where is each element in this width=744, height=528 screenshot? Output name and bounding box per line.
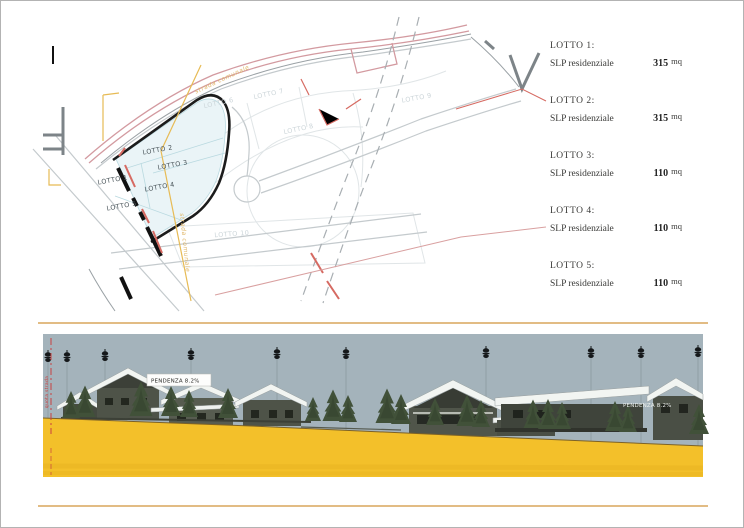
legend-slp-unit: mq	[671, 111, 682, 121]
legend-slp-value: 110	[654, 168, 668, 179]
legend-slp-unit: mq	[671, 276, 682, 286]
slope-annotation-left: PENDENZA 8.2%	[147, 374, 211, 386]
legend-slp-label: SLP residenziale	[550, 279, 614, 289]
legend-slp-label: SLP residenziale	[550, 114, 614, 124]
lot-label-9: LOTTO 9	[401, 91, 432, 104]
road-lines	[33, 39, 521, 311]
legend-lot-title: LOTTO 4:	[550, 206, 700, 216]
lot-label-1: LOTTO 1	[97, 173, 128, 186]
legend-entry-lotto-2: LOTTO 2: SLP residenziale 315 mq	[550, 96, 700, 151]
slope-label-right: PENDENZA 8.2%	[623, 403, 672, 409]
legend-entry-lotto-1: LOTTO 1: SLP residenziale 315 mq	[550, 41, 700, 96]
elevation-drawing: quota strada PENDENZA 8.2% PENDENZA 8.2%	[1, 316, 744, 521]
legend-slp-label: SLP residenziale	[550, 224, 614, 234]
legend-entry-lotto-3: LOTTO 3: SLP residenziale 110 mq	[550, 151, 700, 206]
datum-label: quota strada	[44, 376, 50, 408]
legend-lot-title: LOTTO 2:	[550, 96, 700, 106]
legend-slp-value: 110	[654, 278, 668, 289]
lot-legend: LOTTO 1: SLP residenziale 315 mq LOTTO 2…	[550, 41, 700, 316]
legend-entry-lotto-5: LOTTO 5: SLP residenziale 110 mq	[550, 261, 700, 316]
slope-label-left: PENDENZA 8.2%	[151, 379, 200, 385]
legend-lot-title: LOTTO 5:	[550, 261, 700, 271]
legend-slp-label: SLP residenziale	[550, 169, 614, 179]
dashed-path-lines	[301, 17, 419, 303]
legend-slp-label: SLP residenziale	[550, 59, 614, 69]
legend-lot-title: LOTTO 1:	[550, 41, 700, 51]
legend-slp-value: 315	[653, 113, 668, 124]
lot-label-8: LOTTO 8	[283, 122, 314, 136]
legend-slp-unit: mq	[671, 166, 682, 176]
legend-slp-value: 315	[653, 58, 668, 69]
lot-label-10: LOTTO 10	[214, 229, 249, 239]
legend-slp-unit: mq	[671, 56, 682, 66]
legend-entry-lotto-4: LOTTO 4: SLP residenziale 110 mq	[550, 206, 700, 261]
legend-slp-unit: mq	[671, 221, 682, 231]
lot-label-7: LOTTO 7	[253, 87, 284, 101]
scanned-plan-page: LOTTO 1 LOTTO 2 LOTTO 3 LOTTO 4 LOTTO 5 …	[0, 0, 744, 528]
legend-lot-title: LOTTO 3:	[550, 151, 700, 161]
legend-slp-value: 110	[654, 223, 668, 234]
arrow-red-lines	[456, 89, 546, 109]
